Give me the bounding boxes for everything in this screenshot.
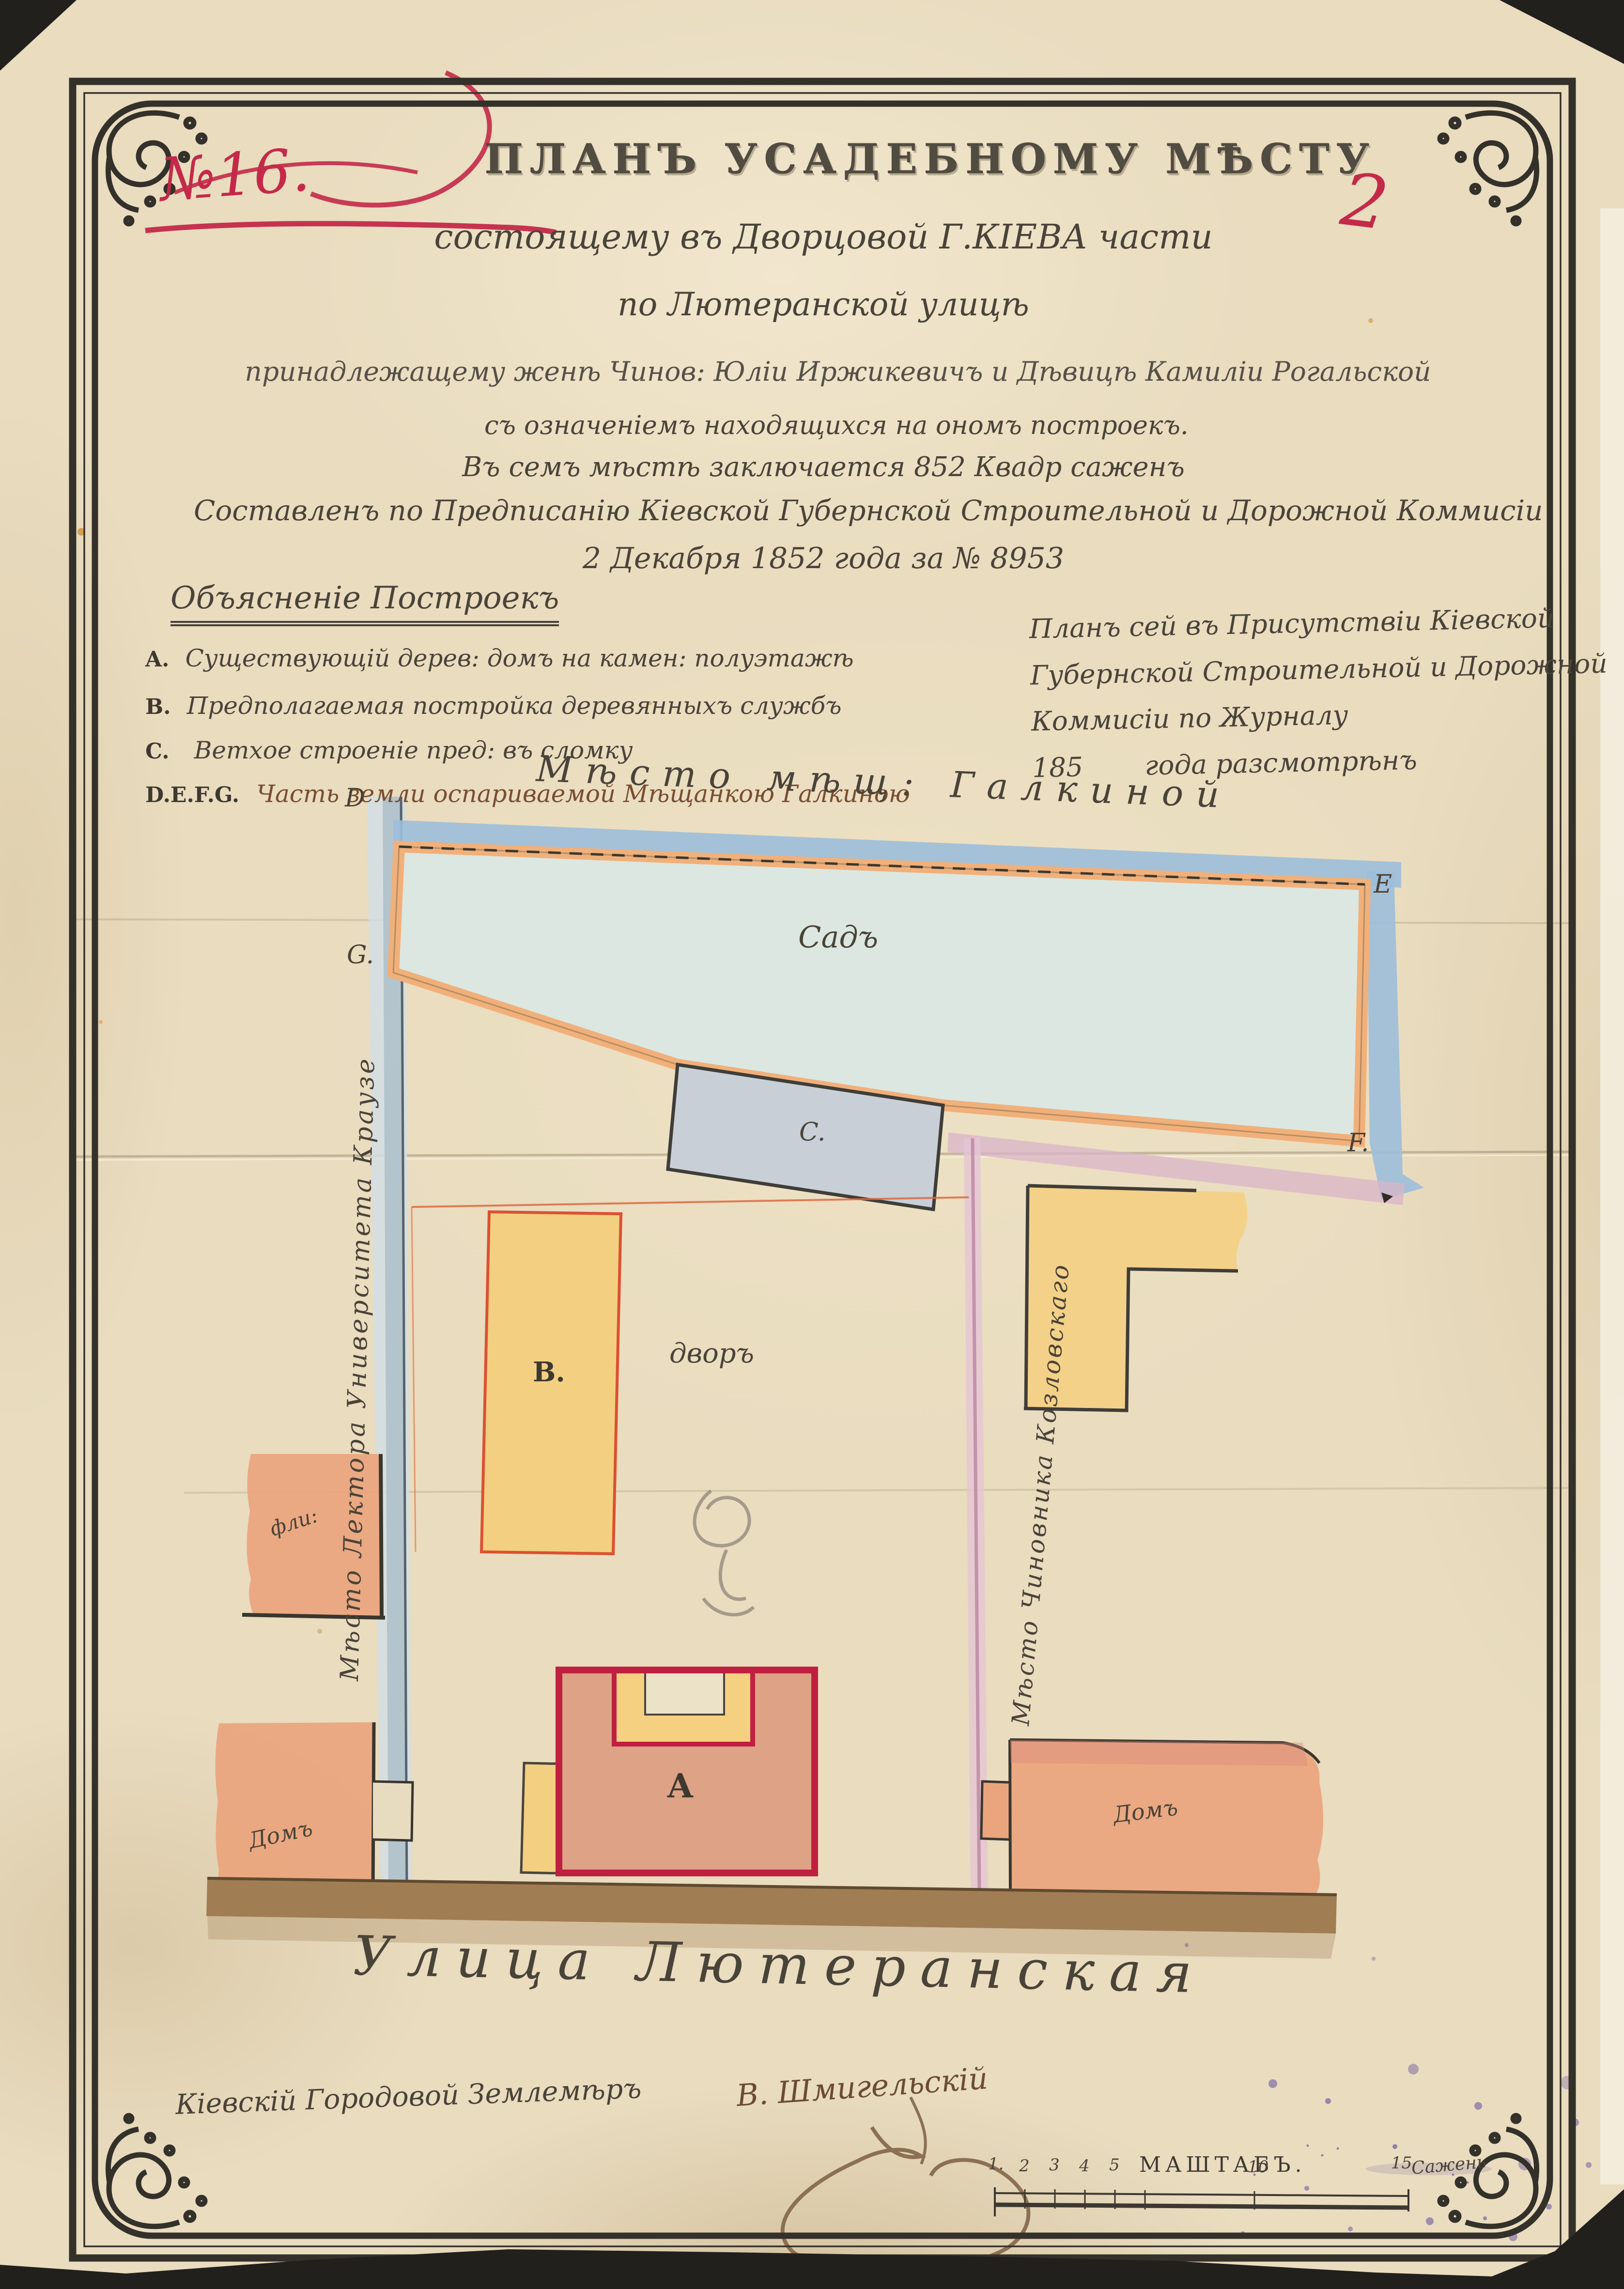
header-line-4: съ означеніемъ находящихся на ономъ пост…: [484, 411, 1162, 440]
corner-d-label: D: [345, 784, 365, 813]
legend-key-c: C.: [145, 739, 170, 764]
legend-text-a: Существующій дерев: домъ на камен: полуэ…: [186, 644, 854, 672]
corner-f-label: F.: [1347, 1129, 1369, 1158]
scale-label: МАШТАБЪ.: [1139, 2152, 1306, 2177]
header-line-5: Въ семъ мѣстѣ заключается 852 Квадр саже…: [460, 451, 1187, 483]
legend-item-a: A. Существующій дерев: домъ на камен: по…: [145, 644, 854, 672]
yard-red-line-vertical: [412, 1207, 416, 1552]
right-blue-band: [1367, 871, 1424, 1200]
legend-heading: Объясненіе Построекъ: [170, 580, 559, 626]
page-title: ПЛАНЪ УСАДЕБНОМУ МѢСТУ: [484, 135, 1172, 183]
legend-text-b: Предполагаемая постройка деревянныхъ слу…: [187, 692, 842, 720]
header-line-1: состоящему въ Дворцовой Г.КІЕВА части: [368, 217, 1279, 257]
header-line-7: 2 Декабря 1852 года за № 8953: [557, 541, 1090, 575]
header-line-3: принадлежащему женѣ Чинов: Юліи Иржикеви…: [165, 356, 1511, 387]
building-a-courtyard-open: [645, 1670, 724, 1715]
case-number: №16.: [157, 135, 312, 214]
scale-tick-5: 5: [1109, 2155, 1120, 2175]
left-house-annex: [373, 1781, 413, 1840]
garden-label: Садъ: [798, 919, 878, 955]
header-line-2: по Лютеранской улицѣ: [523, 286, 1124, 323]
signature-flourish: [783, 2097, 1029, 2271]
legend-key-b: B.: [145, 695, 171, 719]
building-a-label: A: [667, 1767, 693, 1806]
scale-tick-3: 3: [1049, 2155, 1060, 2175]
yard-label: дворъ: [669, 1338, 754, 1369]
left-house-shape: [215, 1722, 374, 1892]
header-line-6: Составленъ по Предписанію Кіевской Губер…: [194, 494, 1472, 527]
legend-key-a: A.: [145, 647, 169, 672]
scale-bar: [995, 2187, 1408, 2216]
legend-item-b: B. Предполагаемая постройка деревянныхъ …: [145, 692, 842, 720]
review-note: Планъ сей въ Присутствіи Кіевской Губерн…: [1029, 595, 1565, 792]
building-c-label: C.: [799, 1118, 825, 1147]
scale-tick-10: 10: [1248, 2157, 1268, 2177]
scale-tick-4: 4: [1079, 2156, 1090, 2176]
legend-key-defg: D.E.F.G.: [145, 783, 239, 807]
pencil-doodle: [695, 1491, 754, 1615]
scale-tick-2: 2: [1019, 2156, 1030, 2176]
corner-e-label: E: [1374, 870, 1392, 899]
right-house-annex: [981, 1781, 1010, 1840]
scanned-plan-sheet: №16. 2 ПЛАНЪ УСАДЕБНОМУ МѢСТУ состоящему…: [0, 0, 1624, 2289]
scale-tick-1: 1.: [988, 2154, 1004, 2174]
building-b-label: B.: [533, 1356, 565, 1388]
right-house-red-wash: [1010, 1740, 1308, 1766]
scale-tick-15: 15: [1391, 2153, 1412, 2173]
scan-right-strip: [1600, 208, 1624, 2184]
